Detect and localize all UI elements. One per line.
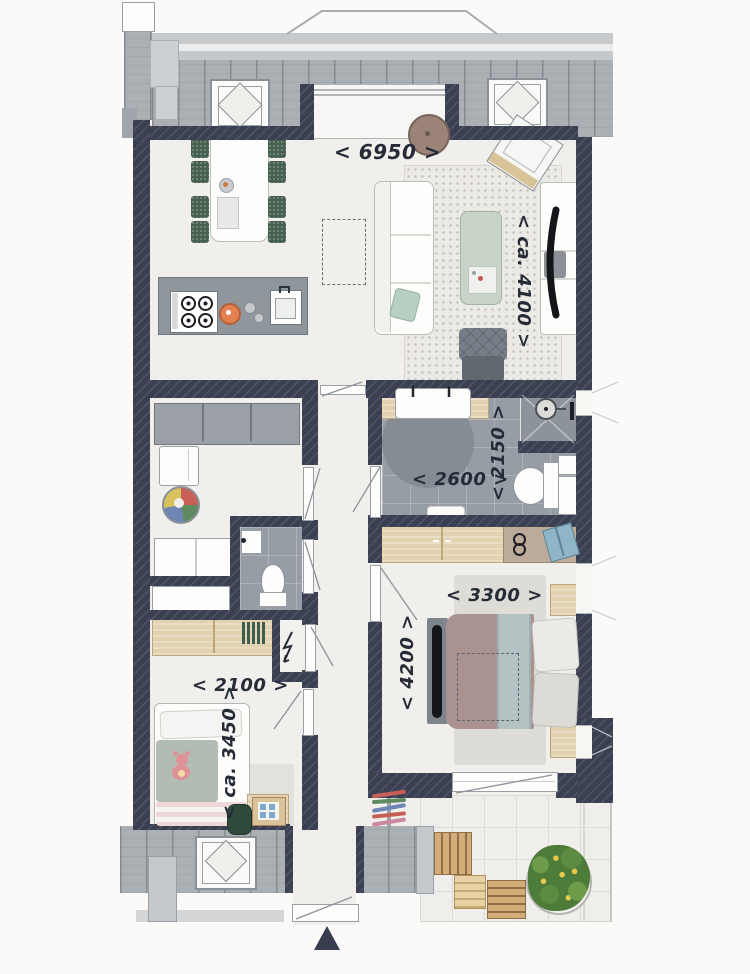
- storage-cabinet: [154, 538, 238, 580]
- bath-toilet-cistern: [543, 462, 559, 509]
- floor-plan: < 6950 > < ca. 4100 > < 2600 > < 2150 > …: [0, 0, 750, 974]
- living-window-glazing-line: [302, 89, 453, 91]
- dining-chair: [268, 196, 286, 218]
- door-entrance: [292, 904, 359, 922]
- wall-tech-left: [272, 620, 280, 678]
- chimney-block: [150, 40, 179, 88]
- built-in-cabinet: [152, 586, 230, 612]
- roof-edge-strip: [135, 33, 613, 62]
- door-terrace: [452, 772, 558, 792]
- dim-bedroom-width: < 3300 >: [446, 586, 518, 606]
- tv-stand: [544, 251, 566, 278]
- wall-hall-east-1: [368, 398, 382, 465]
- door-tech-closet: [305, 624, 316, 672]
- chimney-block2: [155, 86, 178, 120]
- balcony-pier-left: [285, 826, 293, 893]
- dim-bedroom-depth: < 4200 >: [398, 625, 418, 711]
- chimney-bottom: [148, 856, 177, 922]
- living-window-glazing-line2: [302, 94, 453, 96]
- wall-living-hall-left: [150, 380, 318, 398]
- wall-hall-west-3: [302, 592, 318, 625]
- bedroom-wardrobe: [380, 523, 505, 563]
- wall-top-right: [453, 126, 578, 140]
- stove: [170, 291, 218, 333]
- bath-radiator: [558, 476, 577, 515]
- dining-chair: [268, 161, 286, 183]
- laundry-basket-center: [174, 498, 184, 508]
- dim-living-depth: < ca. 4100 >: [513, 214, 533, 330]
- bed-pillow: [532, 672, 580, 728]
- wall-bath-bottom: [368, 515, 578, 527]
- wall-hall-west-2: [302, 520, 318, 540]
- child-blanket: [156, 740, 218, 802]
- terrace-column: [416, 826, 434, 894]
- shower-tray: [520, 393, 578, 446]
- storage-closet: [154, 403, 300, 445]
- wall-storage-bottom: [150, 576, 230, 586]
- door-child-room: [303, 689, 314, 736]
- neighbour-deck: [124, 32, 152, 120]
- dining-chair: [191, 196, 209, 218]
- hanging-clothes: [252, 622, 255, 644]
- wall-top-left: [150, 126, 302, 140]
- kitchen-sink: [270, 290, 302, 325]
- door-bathroom: [370, 466, 381, 518]
- jar: [244, 302, 256, 314]
- roof-outline: [287, 11, 497, 34]
- wc-toilet-cistern: [259, 592, 287, 607]
- hanging-clothes: [262, 622, 265, 644]
- crate-seat: [487, 880, 526, 919]
- north-arrow-icon: [314, 926, 340, 950]
- door-storage: [303, 467, 314, 521]
- coffee-table: [460, 211, 502, 305]
- wc-basin-tap: [241, 538, 246, 543]
- door-wc: [303, 539, 314, 594]
- bedroom-tv: [432, 625, 442, 718]
- window-pier-left: [300, 84, 314, 140]
- crate-seat: [434, 832, 472, 875]
- hanging-clothes: [247, 622, 250, 644]
- bathroom-window: [576, 390, 592, 416]
- double-washbasin: [395, 388, 471, 419]
- door-bedroom: [370, 565, 381, 622]
- window-projection-lines: [592, 382, 618, 755]
- bath-shelf: [558, 455, 577, 475]
- bed-dashed-outline: [457, 653, 519, 721]
- wall-hall-east-3: [368, 622, 382, 775]
- tech-closet-floor: [280, 620, 302, 675]
- balcony-pier-right: [356, 826, 364, 893]
- roof-window-icon: [195, 836, 257, 890]
- wall-child-top: [150, 610, 318, 620]
- bedroom-window-2: [576, 725, 592, 759]
- dining-chair: [191, 161, 209, 183]
- dim-childroom-depth: < ca. 3450 >: [220, 710, 240, 820]
- dim-bathroom-width: < 2600 >: [412, 470, 492, 490]
- footstool: [462, 356, 504, 382]
- table-bowl-fruit: [223, 182, 228, 187]
- bedroom-window-1: [576, 563, 592, 614]
- wall-bedroom-bottom-right: [556, 773, 578, 798]
- glasses-icon: [513, 543, 526, 556]
- kettle-lid: [226, 310, 231, 315]
- wall-exterior-left: [133, 120, 150, 830]
- wall-hall-west-5: [302, 735, 318, 830]
- wall-hall-west-1: [302, 398, 318, 465]
- wall-wc-left: [230, 527, 240, 612]
- wall-shower-stub: [518, 441, 578, 453]
- dim-shower-depth: < 2150 >: [489, 415, 509, 501]
- optional-layout-dashes: [322, 219, 366, 285]
- hanging-clothes: [257, 622, 260, 644]
- washing-machine: [159, 446, 199, 486]
- dim-living-width: < 6950 >: [334, 142, 438, 162]
- hanging-clothes: [242, 622, 245, 644]
- dining-chair: [268, 221, 286, 243]
- crate-table: [454, 875, 486, 909]
- neighbour-block: [122, 2, 155, 32]
- wall-wc-top: [230, 516, 302, 527]
- child-computer: [252, 797, 286, 826]
- dining-chair: [191, 221, 209, 243]
- table-tray: [217, 197, 239, 229]
- bed-pillow: [531, 617, 580, 672]
- round-table-center: [425, 131, 430, 136]
- bottom-balcony-deck2: [362, 826, 420, 893]
- door-living: [320, 385, 366, 395]
- jar-small: [254, 313, 264, 323]
